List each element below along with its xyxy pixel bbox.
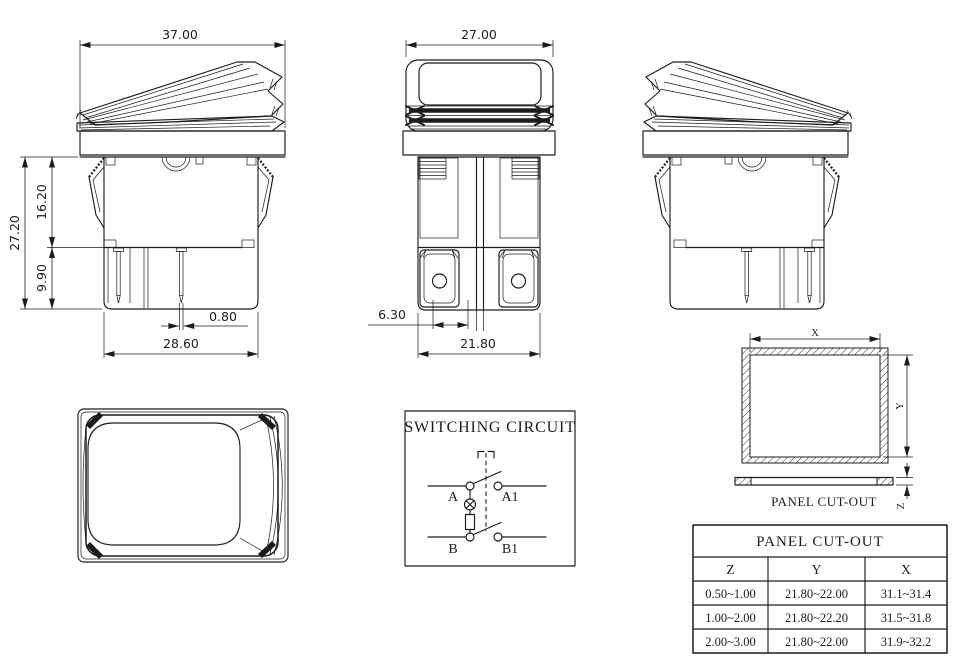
mounting-flange <box>80 131 285 155</box>
terminal-a-label: A <box>448 490 459 505</box>
switching-circuit: SWITCHING CIRCUIT A A1 B B1 <box>404 411 575 566</box>
table-row: 0.50~1.00 21.80~22.00 31.1~31.4 <box>705 587 932 601</box>
terminal-b1-label: B1 <box>502 542 518 557</box>
rocker-switch-drawing: 37.00 27.20 16.20 9.90 0.80 28.60 <box>0 0 957 665</box>
table-col-x: X <box>901 562 911 577</box>
side-view-geometry <box>76 62 285 309</box>
front-view: 27.00 6.30 21.80 <box>368 27 555 358</box>
engineering-drawing-sheet: 37.00 27.20 16.20 9.90 0.80 28.60 <box>0 0 957 665</box>
dim-width-bottom: 28.60 <box>163 336 199 351</box>
resistor-symbol <box>466 515 475 530</box>
top-view <box>78 409 288 562</box>
switch-body-outline <box>104 157 258 309</box>
cell-x-1: 31.1~31.4 <box>881 587 932 601</box>
cell-z-1: 0.50~1.00 <box>705 587 756 601</box>
terminal-b-node <box>466 533 474 541</box>
table-col-y: Y <box>812 562 822 577</box>
side-view-dimensions: 37.00 27.20 16.20 9.90 0.80 28.60 <box>7 27 285 358</box>
cutout-dim-x: X <box>811 328 819 339</box>
terminal-a-node <box>466 482 474 490</box>
terminal-socket-right <box>499 250 538 307</box>
dim-terminal-spacing: 6.30 <box>378 307 406 322</box>
side-view-right <box>643 62 852 309</box>
rocker-face-front <box>419 63 541 105</box>
cell-y-2: 21.80~22.20 <box>785 611 848 625</box>
terminal-pin-right <box>176 248 186 303</box>
table-col-z: Z <box>726 562 734 577</box>
dim-front-width-bottom: 21.80 <box>460 336 496 351</box>
dim-height-lower: 9.90 <box>34 264 49 292</box>
cell-x-3: 31.9~32.2 <box>881 635 932 649</box>
dim-pin-thickness: 0.80 <box>209 309 237 324</box>
cell-x-2: 31.5~31.8 <box>881 611 932 625</box>
table-row: 1.00~2.00 21.80~22.20 31.5~31.8 <box>705 611 931 625</box>
cutout-dim-z: Z <box>896 503 907 509</box>
cell-y-3: 21.80~22.00 <box>785 635 848 649</box>
lamp-symbol <box>465 499 476 510</box>
panel-hatched-frame <box>742 348 888 463</box>
terminal-pin-left <box>114 248 124 303</box>
dim-front-width-top: 27.00 <box>461 27 497 42</box>
terminal-b-label: B <box>448 542 457 557</box>
top-view-flange <box>78 409 288 562</box>
panel-cutout-table: PANEL CUT-OUT Z Y X 0.50~1.00 21.80~22.0… <box>693 525 947 653</box>
terminal-socket-left <box>420 250 459 307</box>
panel-section-strip <box>735 478 893 486</box>
rocker-cap-outline <box>80 62 283 125</box>
dim-width-top: 37.00 <box>162 27 198 42</box>
top-view-rocker-face <box>88 423 240 545</box>
cell-y-1: 21.80~22.00 <box>785 587 848 601</box>
panel-cutout-caption: PANEL CUT-OUT <box>771 494 877 509</box>
dim-height-total: 27.20 <box>7 215 22 251</box>
table-title: PANEL CUT-OUT <box>756 534 884 550</box>
rocker-seal-outline <box>77 116 284 131</box>
dim-height-upper: 16.20 <box>34 184 49 220</box>
circuit-title: SWITCHING CIRCUIT <box>404 419 575 436</box>
cutout-dim-y: Y <box>895 402 906 410</box>
terminal-b1-node <box>494 533 502 541</box>
table-row: 2.00~3.00 21.80~22.00 31.9~32.2 <box>705 635 931 649</box>
terminal-a1-node <box>494 482 502 490</box>
panel-cutout-drawing: X Y Z PANEL CUT-OUT <box>735 328 913 509</box>
cell-z-3: 2.00~3.00 <box>705 635 756 649</box>
top-view-rocker-outline <box>86 415 278 556</box>
terminal-a1-label: A1 <box>501 490 518 505</box>
mounting-flange-front <box>403 131 555 155</box>
cell-z-2: 1.00~2.00 <box>705 611 756 625</box>
